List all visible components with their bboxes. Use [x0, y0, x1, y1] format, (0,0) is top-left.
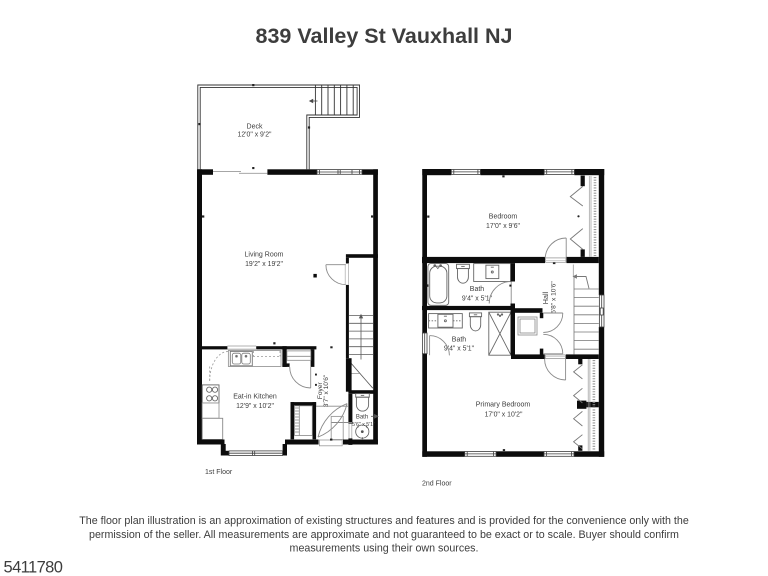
- svg-text:12'0" x 9'2": 12'0" x 9'2": [238, 132, 273, 139]
- svg-text:12'9" x 10'2": 12'9" x 10'2": [236, 403, 274, 410]
- svg-text:6'8" x 10'6": 6'8" x 10'6": [551, 281, 558, 314]
- svg-text:The floor plan illustration is: The floor plan illustration is an approx…: [79, 515, 689, 527]
- svg-text:Bath: Bath: [452, 337, 467, 344]
- svg-text:Bath: Bath: [356, 415, 368, 421]
- svg-text:19'2" x 19'2": 19'2" x 19'2": [245, 261, 283, 268]
- svg-text:5411780: 5411780: [4, 559, 63, 576]
- svg-text:Bedroom: Bedroom: [489, 214, 518, 221]
- svg-text:9'4" x 5'1": 9'4" x 5'1": [462, 295, 493, 302]
- svg-text:17'0" x 9'6": 17'0" x 9'6": [486, 223, 521, 230]
- svg-text:Eat-in Kitchen: Eat-in Kitchen: [233, 394, 277, 401]
- svg-text:2nd Floor: 2nd Floor: [422, 481, 452, 488]
- svg-text:measurements using their own s: measurements using their own sources.: [290, 543, 479, 555]
- svg-text:Living Room: Living Room: [245, 252, 284, 259]
- svg-text:Bath: Bath: [470, 286, 485, 293]
- svg-text:1st Floor: 1st Floor: [205, 469, 233, 476]
- svg-text:Hall: Hall: [541, 291, 550, 304]
- svg-text:Primary Bedroom: Primary Bedroom: [476, 402, 531, 409]
- svg-text:839 Valley St Vauxhall NJ: 839 Valley St Vauxhall NJ: [256, 24, 513, 48]
- svg-text:Deck: Deck: [247, 124, 263, 131]
- svg-text:3'7" x 10'6": 3'7" x 10'6": [323, 374, 330, 407]
- svg-text:17'0" x 10'2": 17'0" x 10'2": [485, 412, 523, 419]
- svg-text:permission of the seller. All: permission of the seller. All measuremen…: [89, 529, 679, 541]
